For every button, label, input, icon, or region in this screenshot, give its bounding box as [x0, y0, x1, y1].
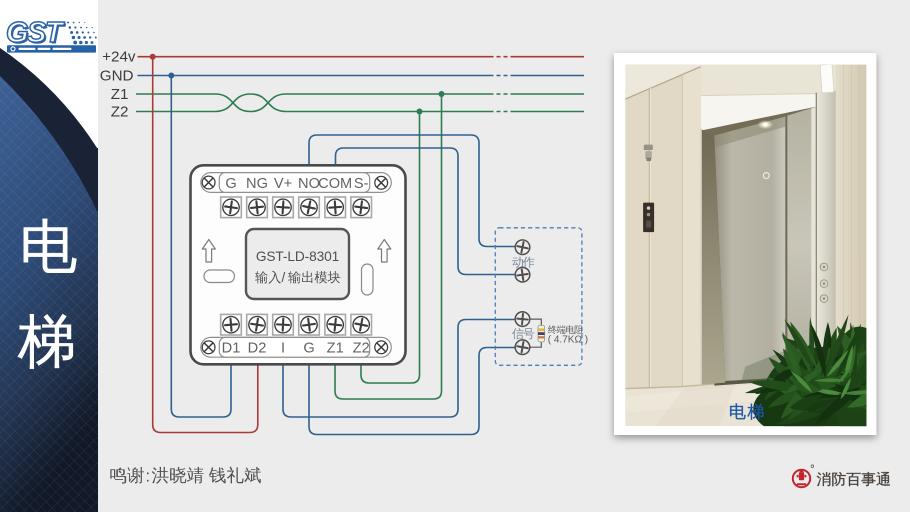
svg-text:/: / [282, 270, 286, 285]
svg-text:Z1: Z1 [327, 341, 344, 357]
svg-text:COM: COM [318, 176, 352, 192]
svg-text:Z1: Z1 [111, 86, 129, 103]
svg-text:G: G [303, 341, 314, 357]
svg-text:GND: GND [100, 67, 134, 84]
svg-text:D2: D2 [248, 341, 267, 357]
svg-text::: : [146, 467, 151, 485]
svg-text:Z2: Z2 [111, 103, 129, 120]
svg-text:+24v: +24v [102, 49, 136, 66]
svg-text:D1: D1 [222, 341, 241, 357]
svg-text:GST: GST [6, 17, 65, 49]
svg-text:I: I [281, 341, 285, 357]
svg-text:Z2: Z2 [353, 341, 370, 357]
svg-text:( 4.7KΩ ): ( 4.7KΩ ) [548, 335, 588, 346]
svg-text:V+: V+ [274, 176, 292, 192]
svg-text:NO: NO [298, 176, 320, 192]
svg-text:GST-LD-8301: GST-LD-8301 [256, 249, 339, 264]
svg-text:G: G [225, 176, 236, 192]
svg-text:S-: S- [354, 176, 369, 192]
svg-text:NG: NG [246, 176, 268, 192]
